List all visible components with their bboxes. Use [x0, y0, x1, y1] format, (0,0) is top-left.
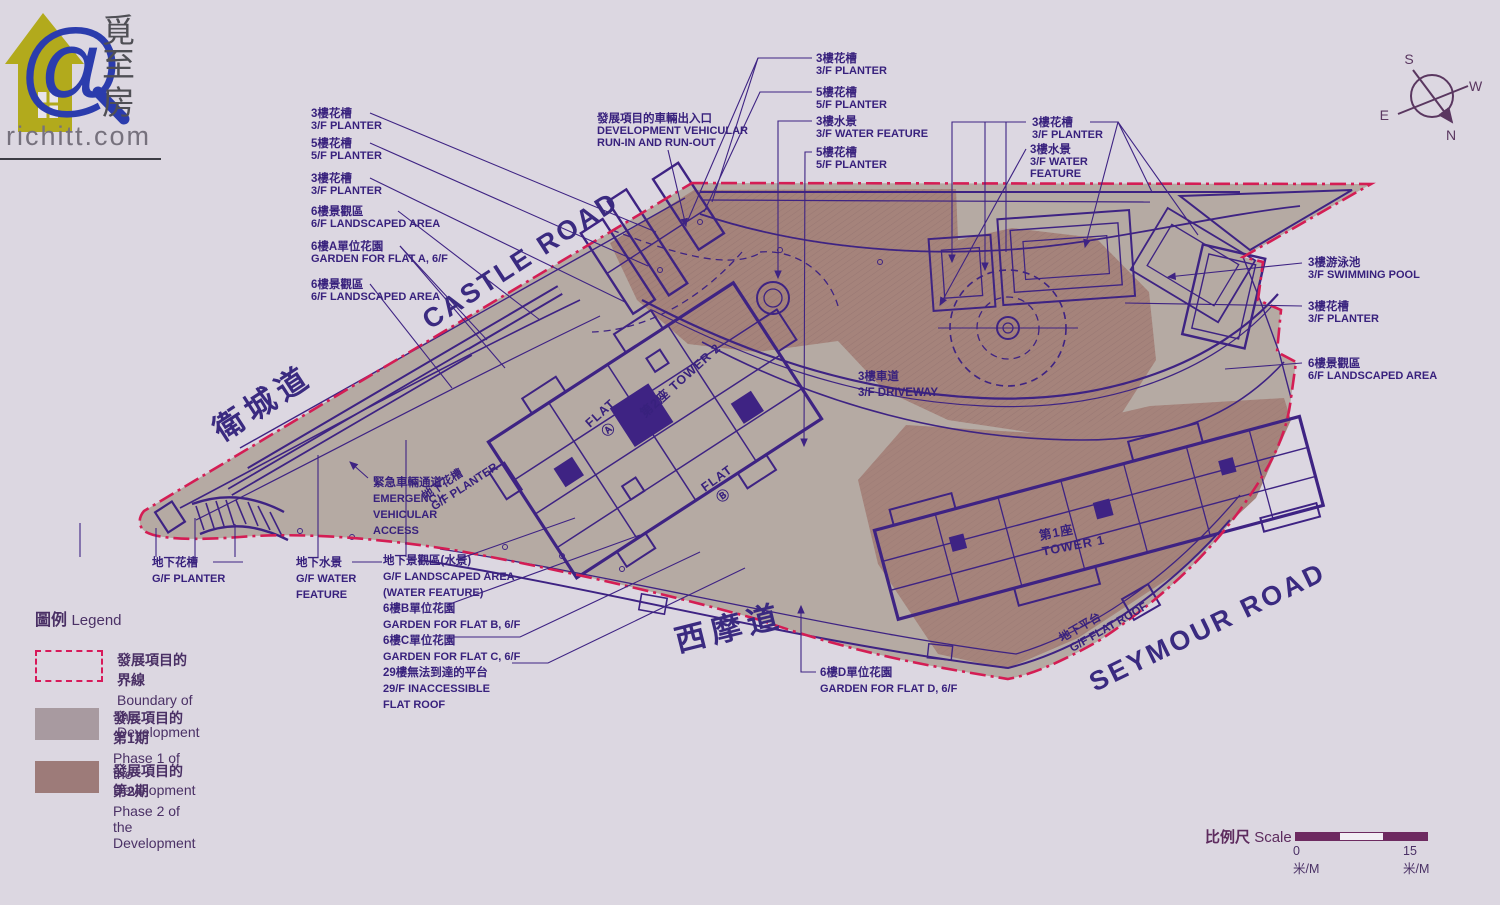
callout-label: 地下花槽: [152, 555, 198, 569]
callout-label: ACCESS: [373, 525, 419, 537]
compass-e: E: [1380, 107, 1389, 123]
callout-label: 5/F PLANTER: [816, 99, 887, 111]
callout-label: 6/F LANDSCAPED AREA: [1308, 370, 1437, 382]
callout-garden-d: 6樓D單位花園 GARDEN FOR FLAT D, 6/F: [820, 665, 958, 695]
legend-title-en: Legend: [71, 612, 121, 629]
legend-phase2-zh: 發展項目的第2期: [113, 761, 195, 801]
compass: S W E N: [1380, 51, 1483, 143]
callout-label: 3樓水景: [816, 114, 857, 128]
logo-char-1: 覓: [102, 12, 135, 49]
callout-label: 3樓花槽: [816, 51, 857, 65]
callout-label: GARDEN FOR FLAT D, 6/F: [820, 683, 958, 695]
callout-label: 6/F LANDSCAPED AREA: [311, 291, 440, 303]
callout-label: G/F LANDSCAPED AREA: [383, 571, 515, 583]
callout-label: 3/F PLANTER: [1032, 129, 1103, 141]
callout-label: 3樓水景: [1030, 142, 1071, 156]
site-plan-canvas: 3樓花槽 3/F PLANTER 5樓花槽 5/F PLANTER 3樓花槽 3…: [0, 0, 1500, 900]
callout-label: GARDEN FOR FLAT C, 6/F: [383, 651, 521, 663]
callout-dev-vehicular: 發展項目的車輛出入口 DEVELOPMENT VEHICULAR RUN-IN …: [596, 111, 748, 149]
callout-label: 3樓花槽: [1308, 299, 1349, 313]
callout-label: 29/F INACCESSIBLE: [383, 683, 490, 695]
scale-bar-graphic: [1295, 832, 1428, 841]
callout-label: 6樓景觀區: [311, 277, 364, 291]
scale-label-zh: 比例尺: [1205, 829, 1250, 846]
callout-label: 3/F WATER FEATURE: [816, 128, 928, 140]
callout-label: 3/F PLANTER: [1308, 313, 1379, 325]
callout-label: GARDEN FOR FLAT A, 6/F: [311, 253, 448, 265]
callout-label: 29樓無法到達的平台: [383, 665, 488, 679]
driveway-label-zh: 3樓車道: [858, 369, 899, 383]
callout-label: (WATER FEATURE): [383, 587, 484, 599]
logo-site-name: richitt.com: [6, 121, 151, 151]
callout-label: VEHICULAR: [373, 509, 437, 521]
callout-label: 6樓C單位花園: [383, 633, 455, 647]
logo-underline: [0, 158, 161, 160]
legend-title-zh: 圖例: [35, 612, 67, 629]
compass-w: W: [1469, 78, 1483, 94]
callout-label: 3樓花槽: [1032, 115, 1073, 129]
legend-phase1-zh: 發展項目的第1期: [113, 708, 195, 748]
compass-s: S: [1404, 51, 1413, 67]
scale-end-label: 15米/M: [1403, 844, 1429, 877]
callout-label: GARDEN FOR FLAT B, 6/F: [383, 619, 521, 631]
legend-row-phase2: 發展項目的第2期 Phase 2 of the Development: [35, 761, 195, 851]
callout-label: 3樓花槽: [311, 171, 352, 185]
scale-bar: 比例尺 Scale 0米/M 15米/M: [1205, 826, 1292, 847]
logo-char-2: 至: [102, 46, 135, 83]
callout-label: 5樓花槽: [311, 136, 352, 150]
callout-label: 6樓B單位花園: [383, 601, 455, 615]
callouts-left: 3樓花槽 3/F PLANTER 5樓花槽 5/F PLANTER 3樓花槽 3…: [311, 106, 448, 303]
legend-swatch-phase1: [35, 708, 99, 740]
scale-start-label: 0米/M: [1293, 844, 1319, 877]
callout-label: FLAT ROOF: [383, 699, 445, 711]
callout-label: RUN-IN AND RUN-OUT: [597, 137, 716, 149]
callouts-top: 3樓花槽 3/F PLANTER 5樓花槽 5/F PLANTER 3樓水景 3…: [816, 51, 928, 171]
callout-label: 5/F PLANTER: [816, 159, 887, 171]
callout-label: 地下水景: [296, 555, 342, 569]
callout-label: 5樓花槽: [816, 85, 857, 99]
compass-n: N: [1446, 127, 1456, 143]
callout-label: 3/F PLANTER: [311, 185, 382, 197]
callout-label: 6/F LANDSCAPED AREA: [311, 218, 440, 230]
scale-segment-3: [1384, 832, 1428, 841]
callouts-right-top: 3樓花槽 3/F PLANTER 3樓水景 3/F WATER FEATURE: [1030, 115, 1103, 180]
callout-label: 6樓D單位花園: [820, 665, 892, 679]
logo-char-3: 房: [102, 84, 135, 121]
callout-label: FEATURE: [1030, 168, 1081, 180]
callout-label: DEVELOPMENT VEHICULAR: [597, 125, 748, 137]
callout-label: 3樓花槽: [311, 106, 352, 120]
callout-label: 3樓游泳池: [1308, 255, 1361, 269]
callout-label: 5/F PLANTER: [311, 150, 382, 162]
callout-label: 6樓A單位花園: [311, 239, 383, 253]
callout-label: 3/F PLANTER: [311, 120, 382, 132]
callout-label: FEATURE: [296, 589, 347, 601]
callouts-right: 3樓游泳池 3/F SWIMMING POOL 3樓花槽 3/F PLANTER…: [1308, 255, 1437, 382]
scale-segment-2: [1339, 832, 1385, 841]
callouts-bottom-left: 地下花槽 G/F PLANTER 地下水景 G/F WATER FEATURE: [152, 555, 356, 601]
legend: 圖例 Legend 發展項目的界線 Boundary of the Develo…: [35, 606, 122, 630]
callout-label: G/F PLANTER: [152, 573, 225, 585]
legend-boundary-zh: 發展項目的界線: [117, 650, 199, 690]
scale-segment-1: [1295, 832, 1339, 841]
callout-label: 5樓花槽: [816, 145, 857, 159]
legend-title: 圖例 Legend: [35, 606, 122, 630]
callout-label: 6樓景觀區: [1308, 356, 1361, 370]
callout-label: 3/F WATER: [1030, 156, 1088, 168]
legend-swatch-boundary: [35, 650, 103, 682]
callout-label: 地下景觀區(水景): [383, 553, 471, 567]
callout-label: G/F WATER: [296, 573, 356, 585]
legend-phase2-en: Phase 2 of the Development: [113, 803, 195, 851]
callout-label: 6樓景觀區: [311, 204, 364, 218]
site-logo[interactable]: @ 覓 至 房 richitt.com: [5, 9, 151, 151]
callout-label: 3/F SWIMMING POOL: [1308, 269, 1420, 281]
callouts-bottom: 地下景觀區(水景) G/F LANDSCAPED AREA (WATER FEA…: [383, 553, 521, 711]
site-plan-page: 3樓花槽 3/F PLANTER 5樓花槽 5/F PLANTER 3樓花槽 3…: [0, 0, 1500, 900]
driveway-label-en: 3/F DRIVEWAY: [858, 387, 938, 399]
scale-label-en: Scale: [1254, 829, 1292, 846]
legend-swatch-phase2: [35, 761, 99, 793]
callout-label: 發展項目的車輛出入口: [596, 111, 712, 125]
callout-label: 3/F PLANTER: [816, 65, 887, 77]
